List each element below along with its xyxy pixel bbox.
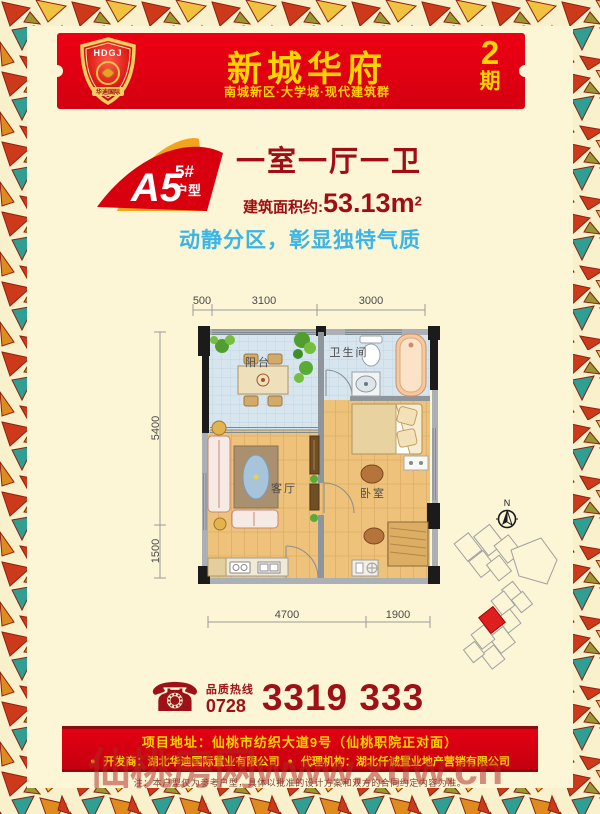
balcony-label: 阳台 — [245, 355, 271, 369]
dim-left-1: 5400 — [150, 416, 162, 440]
logo-acronym: HDGJ — [93, 48, 122, 58]
bedroom-label: 卧室 — [360, 486, 386, 500]
banner-notch-right — [519, 65, 531, 77]
phase-number: 2 — [463, 35, 517, 71]
logo-name: 华迪国际 — [96, 88, 120, 96]
bathroom-label: 卫生间 — [330, 345, 369, 359]
banner-notch-left — [51, 65, 63, 77]
header-banner: HDGJ 华迪国际 新城华府 南城新区·大学城·现代建筑群 2 期 — [57, 33, 525, 109]
phase-label: 期 — [463, 71, 517, 93]
telephone-icon: ☎ — [150, 678, 200, 718]
flyer-page: HDGJ 华迪国际 新城华府 南城新区·大学城·现代建筑群 2 期 A5 5# … — [0, 0, 600, 814]
area-value: 53.13m — [323, 188, 415, 218]
dim-bottom-2: 1900 — [386, 609, 410, 621]
dim-bottom-1: 4700 — [275, 609, 299, 621]
area-code: 0728 — [206, 697, 254, 715]
project-subtitle: 南城新区·大学城·现代建筑群 — [157, 83, 457, 100]
phase-badge: 2 期 — [463, 35, 517, 93]
developer-logo-shield: HDGJ 华迪国际 — [75, 36, 141, 106]
hotline-block: 品质热线 0728 — [206, 681, 254, 715]
watermark-text: 仙桃房网www.xtfw.cn — [88, 735, 502, 797]
rooms-headline: 一室一厅一卫 — [236, 138, 456, 180]
area-sup: 2 — [415, 194, 422, 209]
hotline-row: ☎ 品质热线 0728 3319 333 — [150, 678, 424, 718]
dim-left-2: 1500 — [150, 539, 162, 563]
dim-top-2: 3100 — [252, 295, 276, 307]
unit-building: 5# — [175, 162, 194, 181]
site-buildings — [454, 524, 557, 669]
living-label: 客厅 — [271, 481, 297, 495]
area-label: 建筑面积约: — [243, 199, 323, 216]
area-line: 建筑面积约:53.13m2 — [243, 188, 422, 219]
siteplan: N — [445, 496, 565, 678]
dim-top-1: 500 — [193, 295, 211, 307]
compass-n-label: N — [504, 498, 511, 508]
floorplan: 阳台 卫生间 客厅 卧室 500 3100 3000 5400 1500 470… — [140, 278, 460, 668]
phone-number: 3319 333 — [262, 679, 424, 717]
unit-type-label: 户型 — [175, 183, 201, 198]
dim-top-3: 3000 — [359, 295, 383, 307]
hotline-label: 品质热线 — [206, 681, 254, 697]
compass-icon — [496, 510, 518, 528]
slogan: 动静分区，彰显独特气质 — [150, 224, 450, 254]
unit-badge-sail: A5 5# 户型 — [95, 127, 235, 215]
